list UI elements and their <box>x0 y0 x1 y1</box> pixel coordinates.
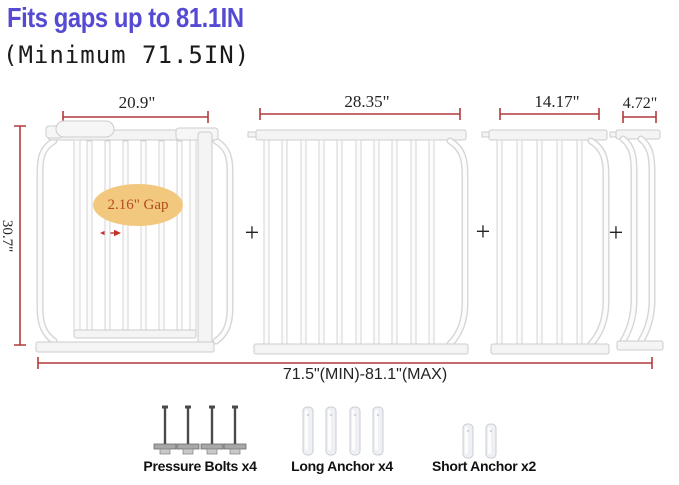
plus-sign-2: + <box>469 218 497 246</box>
page-title: Fits gaps up to 81.1IN <box>7 2 262 34</box>
extension-panel-large <box>248 130 468 354</box>
pressure-bolt-icon <box>201 407 223 454</box>
short-anchor-label: Short Anchor x2 <box>419 458 549 474</box>
gate-base-plate <box>36 342 214 352</box>
dimension-label-gate-width: 20.9" <box>97 94 177 112</box>
gap-callout-bubble: 2.16" Gap <box>93 184 183 226</box>
gates-diagram <box>0 0 679 485</box>
gap-callout-label: 2.16" Gap <box>107 197 168 214</box>
product-dimension-diagram: Fits gaps up to 81.1IN (Minimum 71.5IN) … <box>0 0 679 485</box>
pressure-bolts-icon <box>154 407 246 454</box>
pressure-bolt-icon <box>177 407 199 454</box>
dimension-label-height: 30.7" <box>0 206 16 266</box>
dimension-label-extension-large: 28.35" <box>317 93 417 111</box>
pressure-bolt-icon <box>154 407 176 454</box>
pressure-bolts-label: Pressure Bolts x4 <box>130 458 270 474</box>
dimension-label-extension-medium: 14.17" <box>507 93 607 111</box>
plus-sign-3: + <box>602 219 630 247</box>
page-subtitle: (Minimum 71.5IN) <box>3 41 323 69</box>
gate-handle <box>56 121 114 137</box>
dimension-label-extension-small: 4.72" <box>605 95 675 113</box>
dimension-label-total-range: 71.5"(MIN)-81.1"(MAX) <box>215 366 515 384</box>
gate-door-bottom-rail <box>74 330 196 338</box>
long-anchor-icon <box>303 407 383 455</box>
short-anchor-icon <box>463 424 496 458</box>
long-anchor-label: Long Anchor x4 <box>277 458 407 474</box>
gate-lock-post <box>198 132 212 344</box>
plus-sign-1: + <box>238 219 266 247</box>
main-gate-panel <box>36 121 230 352</box>
pressure-bolt-icon <box>224 407 246 454</box>
extension-panel-medium <box>482 130 609 354</box>
